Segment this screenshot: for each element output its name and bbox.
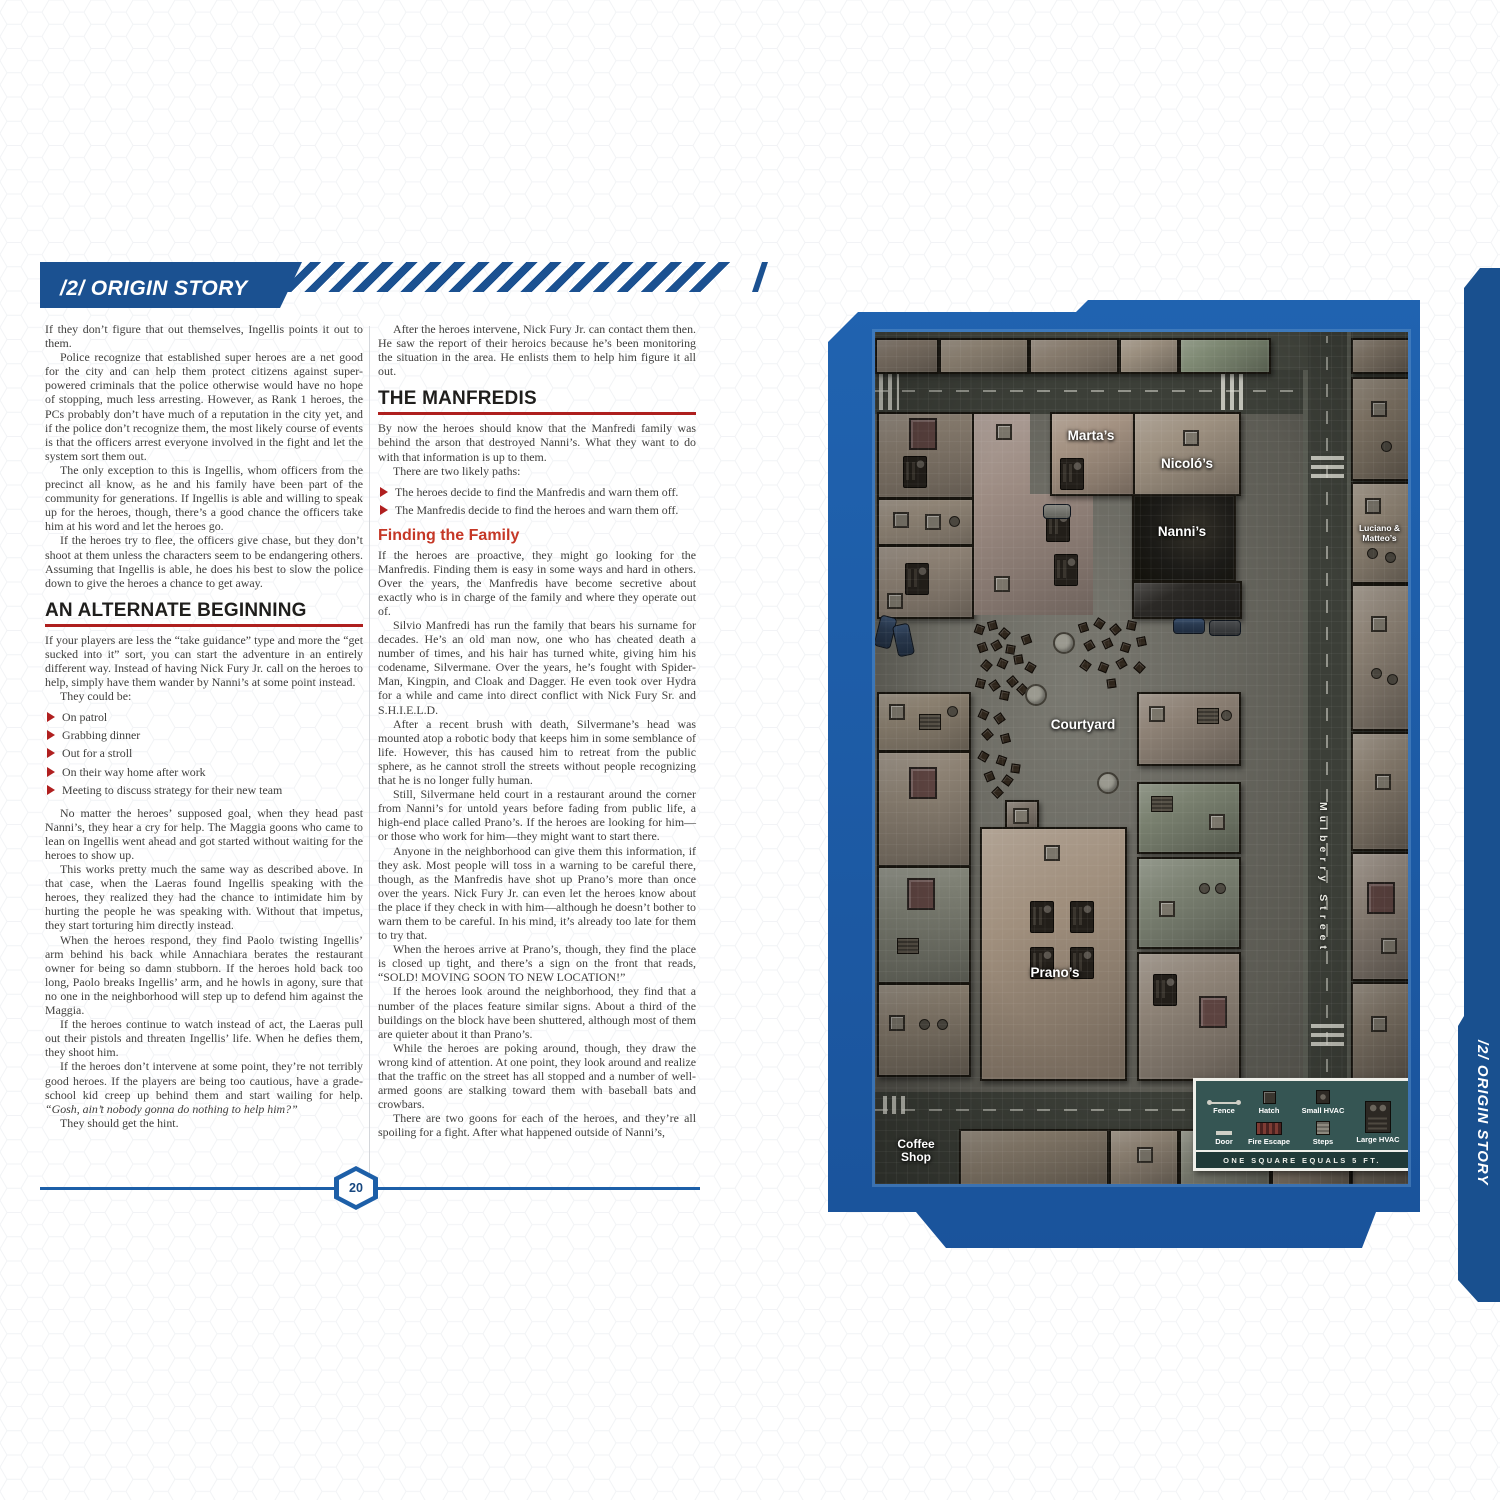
roof-hatch-icon (1149, 706, 1165, 722)
legend-item-steps: Steps (1292, 1117, 1354, 1146)
legend-label: Hatch (1259, 1106, 1280, 1115)
building (1137, 782, 1241, 854)
roof-vent-icon (947, 706, 958, 717)
book-page: /2/ ORIGIN STORY If they don’t figure th… (0, 0, 1500, 1500)
bullet-text: The Manfredis decide to find the heroes … (395, 503, 678, 517)
hvac-unit-icon (1060, 458, 1084, 490)
text-column-left: If they don’t figure that out themselves… (45, 322, 363, 1130)
fence-icon (1209, 1102, 1239, 1104)
cafe-table (1053, 632, 1075, 654)
roof-hatch-icon (1371, 616, 1387, 632)
legend-item-door: Door (1202, 1117, 1246, 1146)
roof-window (909, 418, 937, 450)
roof-hatch-icon (1044, 845, 1060, 861)
body-paragraph: While the heroes are poking around, thou… (378, 1041, 696, 1111)
body-paragraph: If the heroes look around the neighborho… (378, 984, 696, 1040)
body-paragraph: Police recognize that established super … (45, 350, 363, 463)
hvac-unit-icon (905, 563, 929, 595)
map-label-martas: Marta’s (1041, 428, 1141, 443)
building (1137, 692, 1241, 766)
roof-hatch-icon (1371, 401, 1387, 417)
map-label-coffee-shop: Coffee Shop (881, 1138, 951, 1164)
roof-hatch-icon (996, 424, 1012, 440)
cafe-chairs-cluster (1071, 615, 1166, 695)
building (1351, 732, 1408, 851)
bullet-triangle-icon (47, 712, 55, 722)
parked-car (1173, 618, 1205, 634)
bullet-item: Meeting to discuss strategy for their ne… (47, 783, 363, 797)
legend-item-fence: Fence (1202, 1086, 1246, 1115)
header-stripe-fragment (752, 262, 768, 292)
building-coffee-shop (959, 1129, 1109, 1184)
bullet-item: The heroes decide to find the Manfredis … (380, 485, 696, 499)
legend-item-small-hvac: Small HVAC (1292, 1086, 1354, 1115)
hvac-unit-icon (1153, 974, 1177, 1006)
legend-label: Fire Escape (1248, 1137, 1290, 1146)
body-paragraph: If the heroes try to flee, the officers … (45, 533, 363, 589)
roof-vent-icon (1387, 674, 1398, 685)
bullet-triangle-icon (380, 487, 388, 497)
roof-hatch-icon (994, 576, 1010, 592)
building-martas (1050, 412, 1137, 496)
roof-hatch-icon (925, 514, 941, 530)
body-paragraph: The only exception to this is Ingellis, … (45, 463, 363, 533)
map-label-pranos: Prano’s (1005, 965, 1105, 980)
roof-hatch-icon (1013, 808, 1029, 824)
bullet-list: On patrol Grabbing dinner Out for a stro… (45, 710, 363, 796)
building-pranos (980, 827, 1127, 1081)
roof-hatch-icon (889, 704, 905, 720)
roof-hatch-icon (887, 593, 903, 609)
body-paragraph: They should get the hint. (45, 1116, 363, 1130)
roof-vent-icon (1371, 668, 1382, 679)
sidewalk (1303, 370, 1308, 1184)
body-paragraph: Anyone in the neighborhood can give them… (378, 844, 696, 943)
crosswalk (1221, 374, 1245, 410)
cafe-chairs-cluster (970, 615, 1065, 705)
cafe-table (1097, 772, 1119, 794)
parked-car (1043, 504, 1071, 519)
body-paragraph: No matter the heroes’ supposed goal, whe… (45, 806, 363, 862)
chapter-side-tab: /2/ ORIGIN STORY (1452, 268, 1500, 1302)
body-paragraph: This works pretty much the same way as d… (45, 862, 363, 932)
legend-item-fire-escape: Fire Escape (1248, 1117, 1290, 1146)
roof-vent-icon (1221, 710, 1232, 721)
roof-window (907, 878, 935, 910)
crosswalk (1311, 452, 1344, 478)
building (877, 983, 971, 1077)
large-hvac-icon (1365, 1101, 1391, 1133)
body-paragraph: If your players are less the “take guida… (45, 633, 363, 689)
roof-hatch-icon (1381, 938, 1397, 954)
page-number-badge: 20 (334, 1166, 378, 1210)
bullet-item: On their way home after work (47, 765, 363, 779)
map-label-luciano-matteos: Luciano & Matteo’s (1351, 524, 1408, 544)
legend-item-large-hvac: Large HVAC (1354, 1086, 1402, 1146)
roof-vent-icon (1151, 796, 1173, 812)
hvac-unit-icon (1054, 554, 1078, 586)
battle-map: Marta’s Nicoló’s Nanni’s Luciano & Matte… (875, 332, 1408, 1184)
bullet-text: Grabbing dinner (62, 728, 140, 742)
legend-label: Small HVAC (1302, 1106, 1345, 1115)
roof-hatch-icon (1209, 814, 1225, 830)
body-paragraph: When the heroes arrive at Prano’s, thoug… (378, 942, 696, 984)
map-label-courtyard: Courtyard (1023, 717, 1143, 732)
body-paragraph: They could be: (45, 689, 363, 703)
roof-vent-icon (897, 938, 919, 954)
body-paragraph: If the heroes continue to watch instead … (45, 1017, 363, 1059)
building (875, 338, 939, 374)
door-icon (1216, 1131, 1232, 1135)
cafe-table (1025, 684, 1047, 706)
bullet-triangle-icon (47, 748, 55, 758)
roof-vent-icon (937, 1019, 948, 1030)
map-label-mulberry-street: Mulberry Street (1317, 802, 1329, 982)
legend-label: Fence (1213, 1106, 1235, 1115)
bullet-item: Grabbing dinner (47, 728, 363, 742)
roof-window (1199, 996, 1227, 1028)
roof-vent-icon (1215, 883, 1226, 894)
body-paragraph: If they don’t figure that out themselves… (45, 322, 363, 350)
body-paragraph: There are two goons for each of the hero… (378, 1111, 696, 1139)
roof-window (909, 767, 937, 799)
building (877, 866, 971, 984)
building (1351, 377, 1408, 481)
legend-item-hatch: Hatch (1248, 1086, 1290, 1115)
body-paragraph: When the heroes respond, they find Paolo… (45, 933, 363, 1018)
steps-icon (1316, 1121, 1330, 1135)
map-legend: Fence Hatch Small HVAC Door Fire Escape … (1193, 1078, 1408, 1171)
bullet-item: On patrol (47, 710, 363, 724)
body-paragraph: Still, Silvermane held court in a restau… (378, 787, 696, 843)
hvac-unit-icon (1070, 901, 1094, 933)
section-heading-the-manfredis: THE MANFREDIS (378, 389, 696, 415)
roof-window (1367, 882, 1395, 914)
small-hvac-icon (1316, 1090, 1330, 1104)
roof-hatch-icon (889, 1015, 905, 1031)
hvac-unit-icon (903, 456, 927, 488)
bullet-list: The heroes decide to find the Manfredis … (378, 485, 696, 517)
chapter-title: /2/ ORIGIN STORY (40, 277, 248, 308)
body-paragraph: If the heroes are proactive, they might … (378, 548, 696, 618)
building (1351, 852, 1408, 981)
paragraph-text: If the heroes don’t intervene at some po… (45, 1059, 363, 1101)
body-paragraph: Silvio Manfredi has run the family that … (378, 618, 696, 717)
building (1119, 338, 1179, 374)
building-burnt-annex (1132, 581, 1242, 619)
bullet-triangle-icon (380, 505, 388, 515)
bullet-text: Meeting to discuss strategy for their ne… (62, 783, 282, 797)
crosswalk (1311, 1020, 1344, 1046)
roof-hatch-icon (1159, 901, 1175, 917)
parked-car (1209, 620, 1241, 636)
building (939, 338, 1029, 374)
battle-map-frame: Marta’s Nicoló’s Nanni’s Luciano & Matte… (828, 298, 1420, 1260)
building (1351, 338, 1408, 374)
text-column-middle: After the heroes intervene, Nick Fury Jr… (378, 322, 696, 1139)
bullet-triangle-icon (47, 785, 55, 795)
body-paragraph: After a recent brush with death, Silverm… (378, 717, 696, 787)
bullet-item: Out for a stroll (47, 746, 363, 760)
side-tab-label: /2/ ORIGIN STORY (1474, 1040, 1491, 1290)
page-number: 20 (339, 1171, 373, 1205)
header-diagonal-stripes (262, 262, 750, 292)
building (877, 692, 971, 752)
crosswalk (879, 374, 899, 410)
body-paragraph: By now the heroes should know that the M… (378, 421, 696, 463)
body-paragraph: There are two likely paths: (378, 464, 696, 478)
building (1029, 338, 1119, 374)
building (877, 545, 974, 619)
hvac-unit-icon (1030, 901, 1054, 933)
cafe-chairs-cluster (973, 704, 1028, 799)
italic-quote: “Gosh, ain’t nobody gonna do nothing to … (45, 1102, 298, 1116)
building (1179, 338, 1271, 374)
bullet-text: On patrol (62, 710, 107, 724)
legend-scale-note: ONE SQUARE EQUALS 5 FT. (1196, 1150, 1408, 1168)
bullet-triangle-icon (47, 767, 55, 777)
roof-hatch-icon (1371, 1016, 1387, 1032)
roof-hatch-icon (1137, 1147, 1153, 1163)
roof-vent-icon (1199, 883, 1210, 894)
building (877, 412, 974, 499)
hatch-icon (1263, 1091, 1276, 1104)
bullet-text: Out for a stroll (62, 746, 132, 760)
roof-vent-icon (919, 1019, 930, 1030)
footer-rule-right (376, 1187, 700, 1190)
roof-vent-icon (1367, 548, 1378, 559)
building (1137, 857, 1241, 949)
fire-escape-icon (1256, 1122, 1282, 1135)
roof-hatch-icon (1365, 498, 1381, 514)
roof-vent-icon (1381, 441, 1392, 452)
building (1109, 1129, 1179, 1184)
roof-hatch-icon (1375, 774, 1391, 790)
building (1137, 952, 1241, 1081)
building (1351, 584, 1408, 731)
roof-vent-icon (1197, 708, 1219, 724)
roof-vent-icon (919, 714, 941, 730)
bullet-text: On their way home after work (62, 765, 206, 779)
roof-vent-icon (1385, 552, 1396, 563)
building (877, 751, 971, 867)
bullet-text: The heroes decide to find the Manfredis … (395, 485, 678, 499)
building-nicolos (1133, 412, 1241, 496)
building (877, 498, 974, 546)
column-divider (369, 326, 370, 1182)
roof-hatch-icon (893, 512, 909, 528)
body-paragraph: After the heroes intervene, Nick Fury Jr… (378, 322, 696, 378)
map-label-nicolos: Nicoló’s (1137, 456, 1237, 471)
bullet-item: The Manfredis decide to find the heroes … (380, 503, 696, 517)
body-paragraph: If the heroes don’t intervene at some po… (45, 1059, 363, 1115)
legend-label: Steps (1313, 1137, 1333, 1146)
footer-rule-left (40, 1187, 336, 1190)
map-label-nannis: Nanni’s (1132, 524, 1232, 539)
legend-label: Large HVAC (1356, 1135, 1399, 1144)
bullet-triangle-icon (47, 730, 55, 740)
subsection-heading-finding-the-family: Finding the Family (378, 527, 696, 545)
roof-hatch-icon (1183, 430, 1199, 446)
legend-label: Door (1215, 1137, 1233, 1146)
roof-vent-icon (949, 516, 960, 527)
section-heading-alternate-beginning: AN ALTERNATE BEGINNING (45, 601, 363, 627)
building (1351, 982, 1408, 1091)
